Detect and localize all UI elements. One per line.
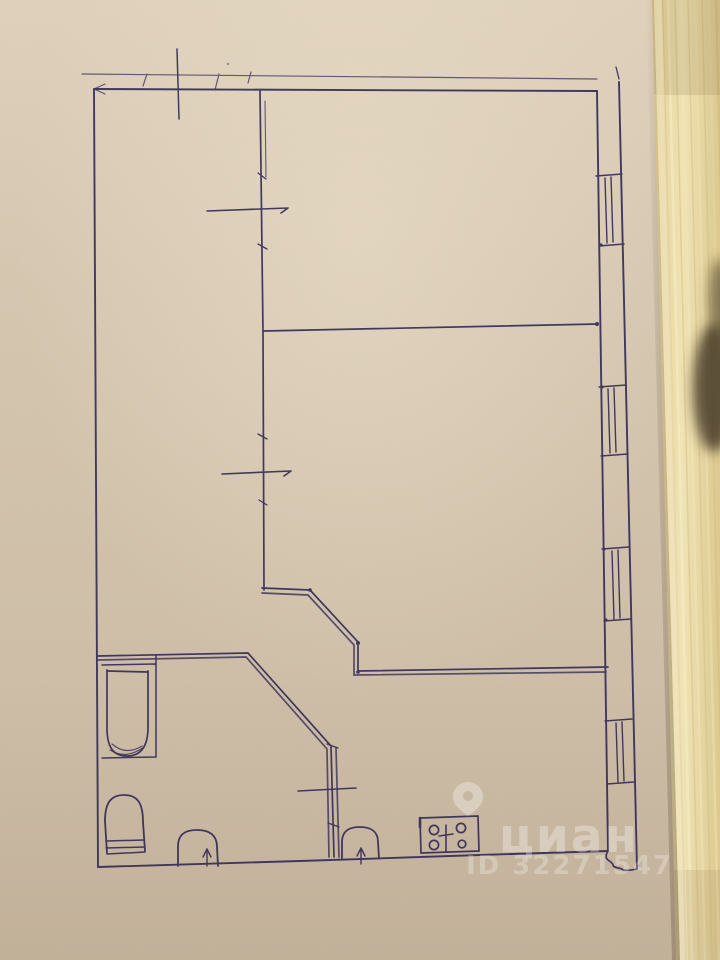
watermark-id-text: ID 32271547 [466, 851, 673, 881]
floorplan-photo: циан ID 32271547 [0, 0, 720, 960]
photo-container: циан ID 32271547 [0, 0, 720, 960]
